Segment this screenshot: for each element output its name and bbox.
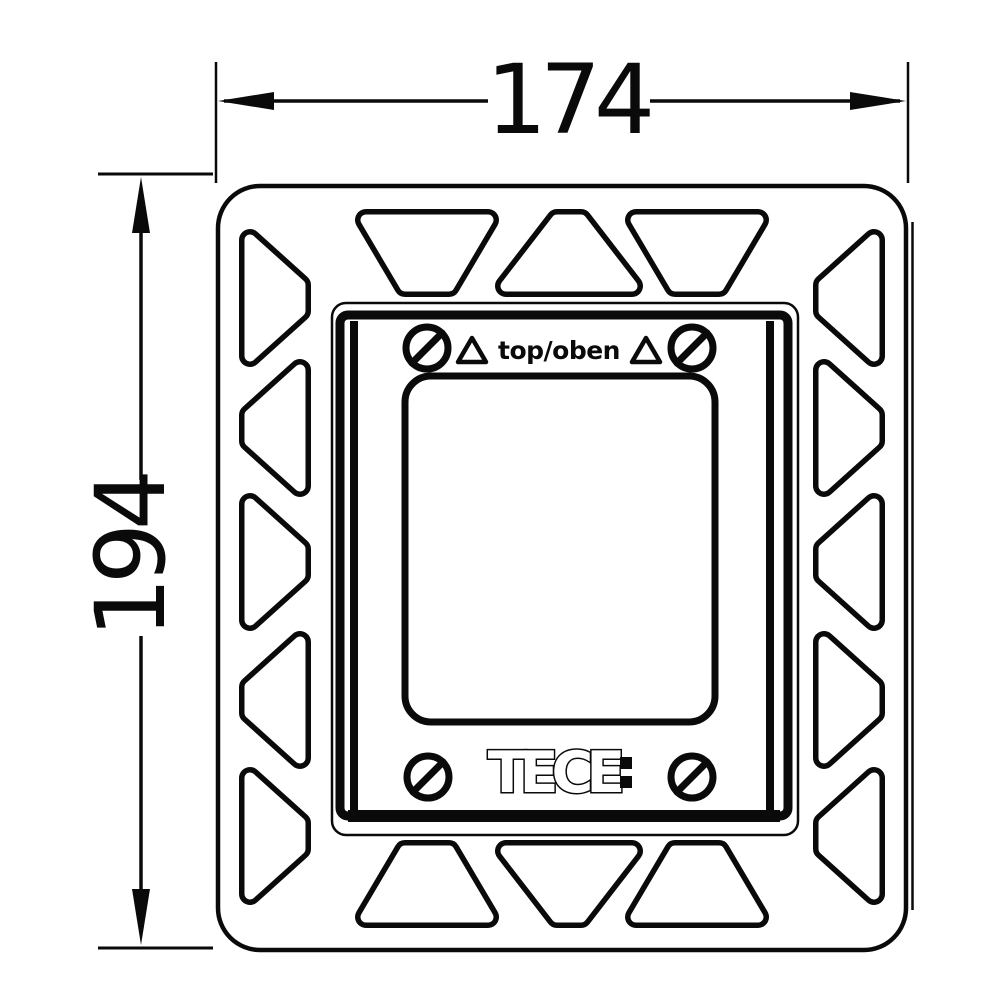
dimension-height: 194 [75, 174, 213, 948]
brand-logo: TECE [488, 740, 632, 806]
height-dimension-value: 194 [75, 474, 187, 638]
screw-top-right [671, 327, 713, 369]
brand-colon-dot-bottom [620, 776, 632, 788]
brand-wordmark: TECE [488, 740, 622, 806]
arrowhead-right-icon [850, 92, 906, 110]
technical-drawing-canvas: top/oben TECE 174 194 [0, 0, 1000, 1000]
plate-opening [405, 376, 715, 722]
width-dimension-value: 174 [486, 44, 650, 156]
screw-bottom-right [671, 756, 713, 798]
dimension-width: 174 [216, 44, 908, 183]
drawing-page: top/oben TECE 174 194 [0, 0, 1000, 1000]
arrowhead-left-icon [218, 92, 274, 110]
arrowhead-up-icon [132, 177, 150, 233]
arrowhead-down-icon [132, 889, 150, 945]
screw-bottom-left [407, 756, 449, 798]
brand-colon-dot-top [620, 757, 632, 769]
orientation-label: top/oben [498, 336, 620, 365]
screw-top-left [406, 327, 448, 369]
